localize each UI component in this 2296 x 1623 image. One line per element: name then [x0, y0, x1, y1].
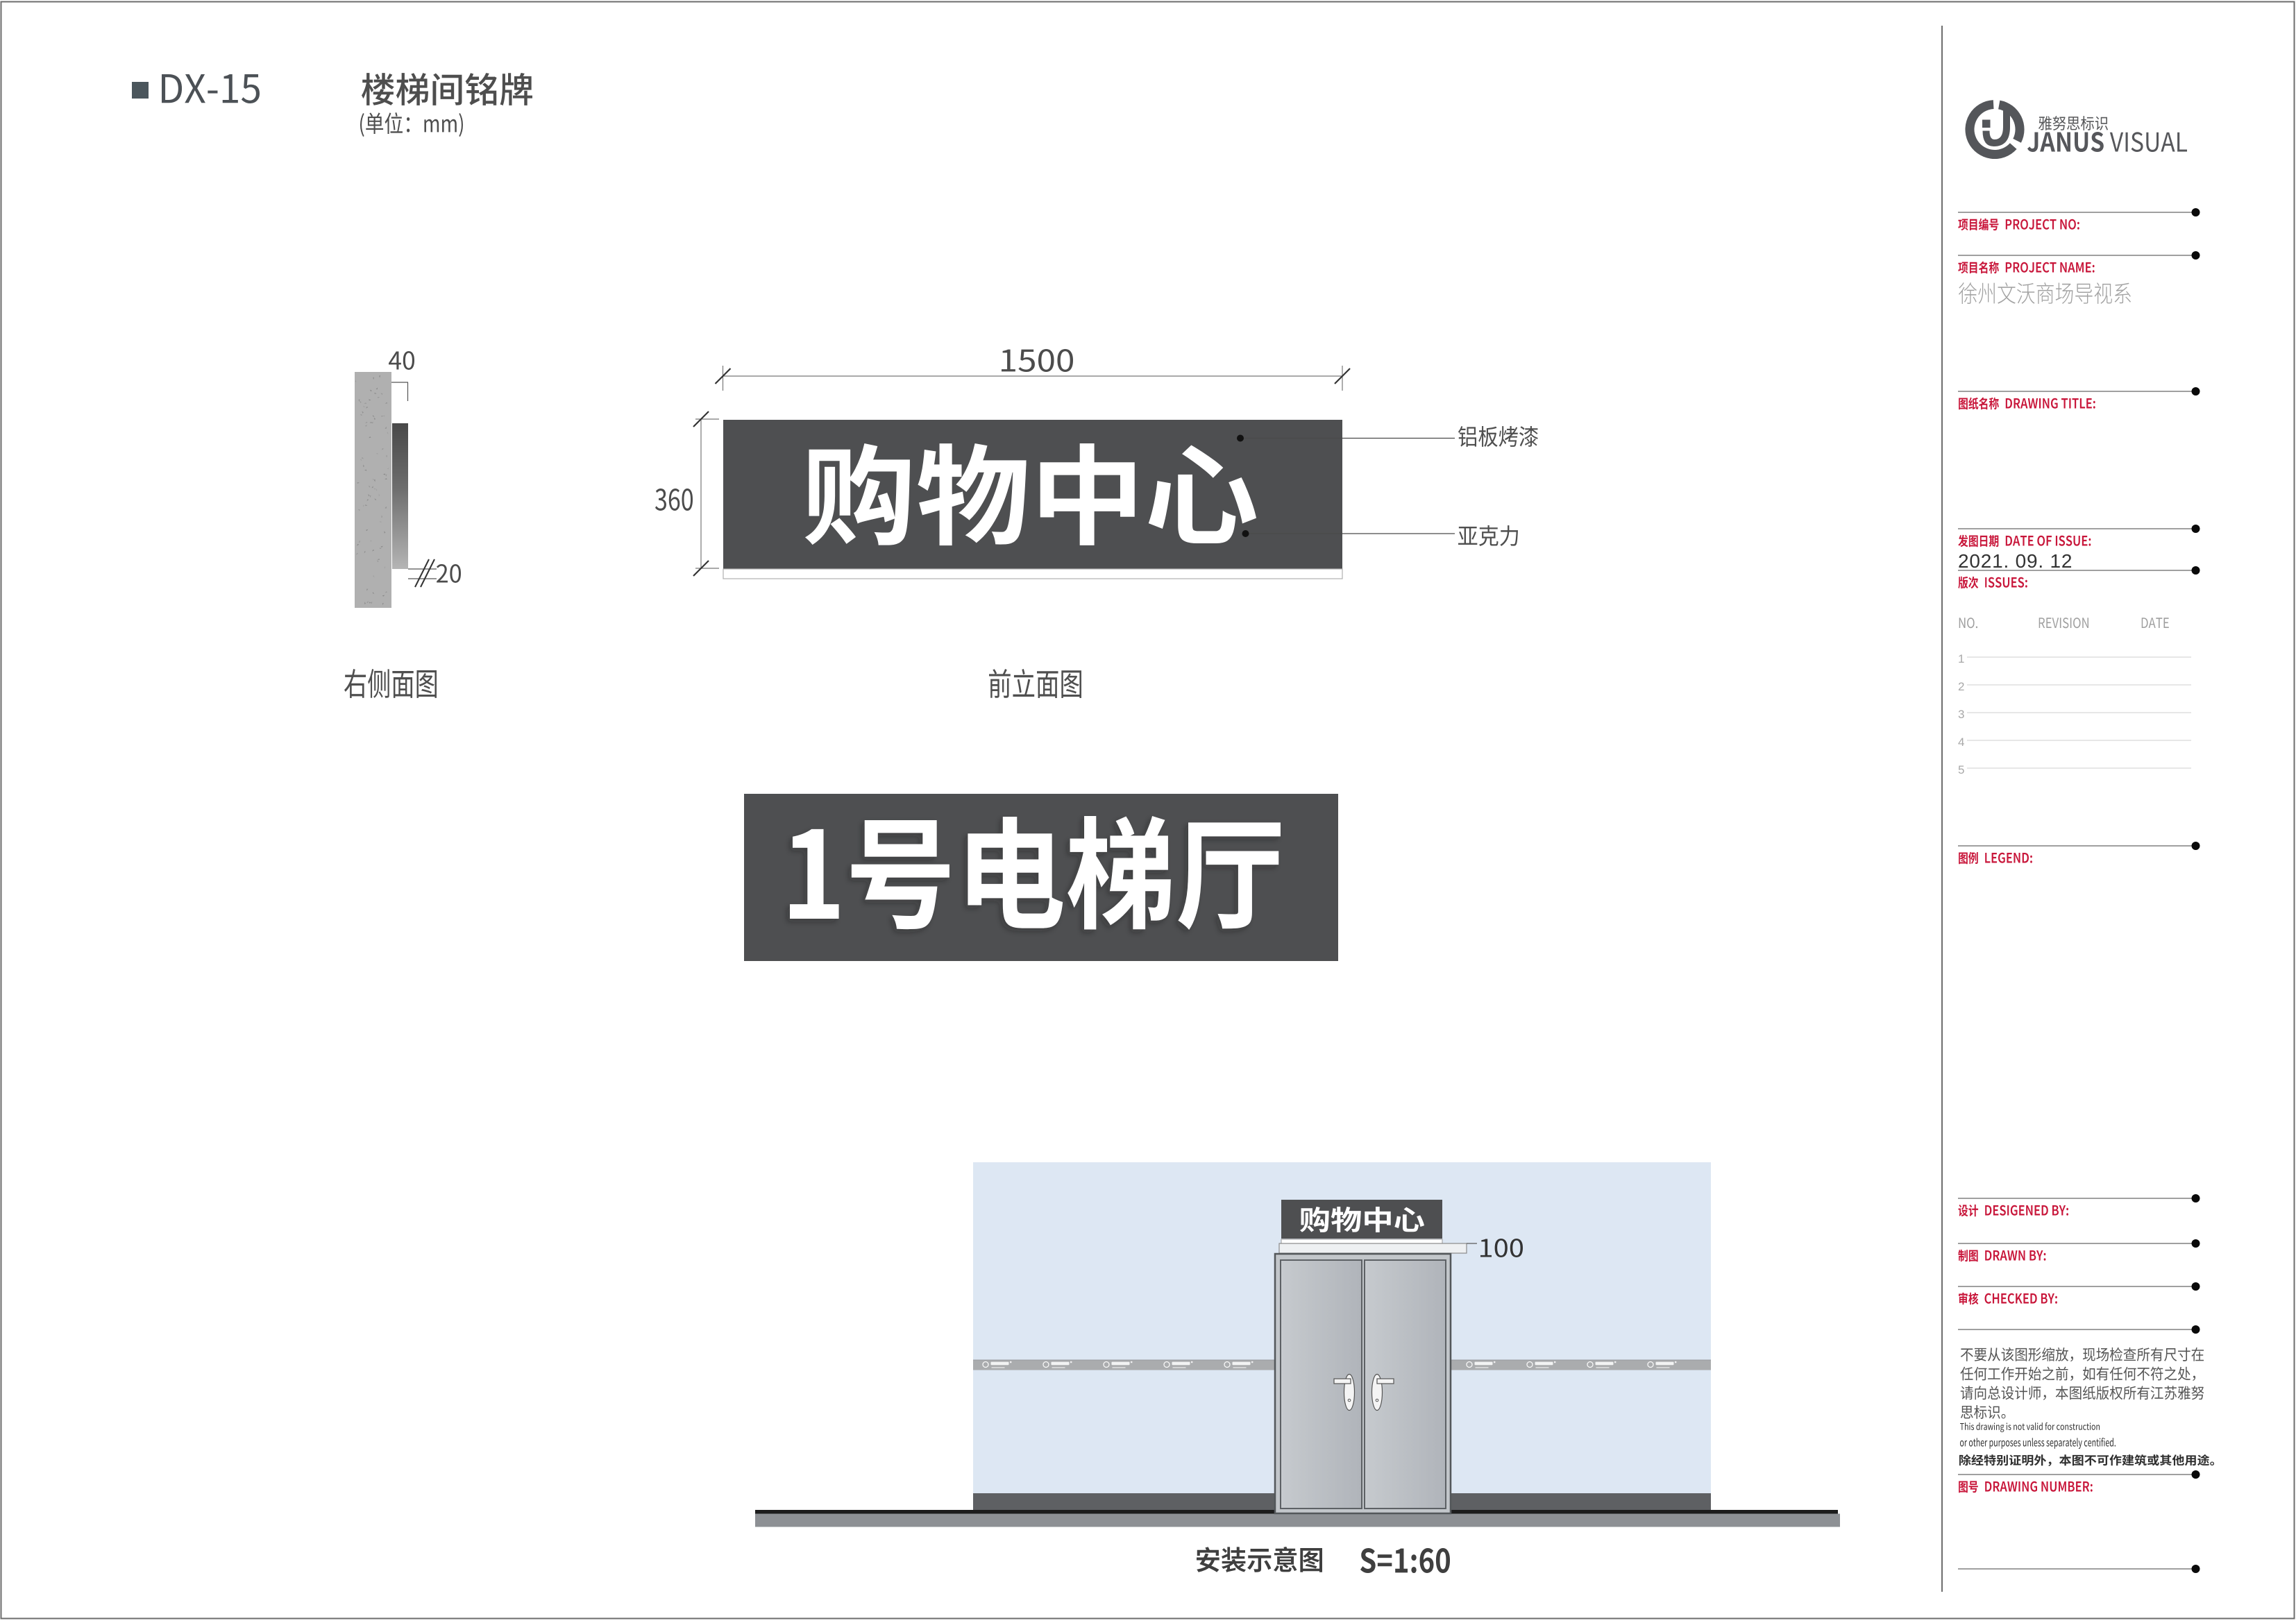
svg-text:2021. 09. 12: 2021. 09. 12: [1958, 550, 2073, 572]
svg-text:4: 4: [1958, 736, 1964, 749]
svg-text:1: 1: [1958, 652, 1964, 665]
svg-text:3: 3: [1958, 708, 1964, 721]
svg-text:5: 5: [1958, 763, 1964, 776]
svg-text:2: 2: [1958, 680, 1964, 693]
